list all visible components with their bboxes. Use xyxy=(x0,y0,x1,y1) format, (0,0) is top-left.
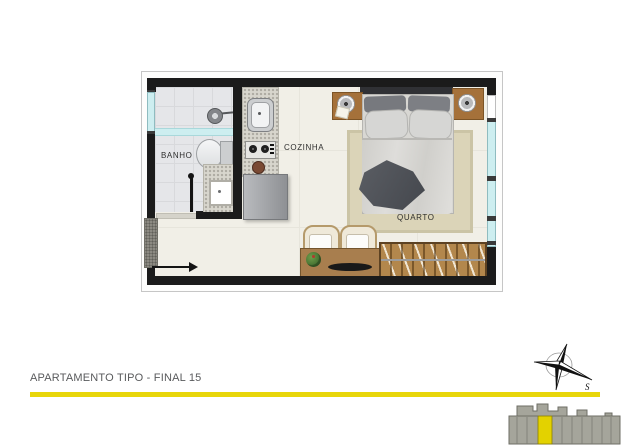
refrigerator-icon xyxy=(243,174,288,220)
bedroom-window xyxy=(487,118,496,247)
wall-right-pillar xyxy=(487,95,496,120)
window-mullion xyxy=(487,216,496,221)
entrance-arrow-line xyxy=(152,266,190,268)
wall-right xyxy=(487,78,496,95)
bathroom-door-leaf xyxy=(190,178,193,212)
window-cap xyxy=(487,241,496,245)
wall-right xyxy=(487,245,496,285)
cooktop-knob xyxy=(270,144,274,146)
bathroom-faucet-dot xyxy=(218,190,221,193)
accent-line xyxy=(30,392,600,397)
door-jamb xyxy=(196,211,203,219)
bathroom-door-threshold xyxy=(156,213,198,219)
compass-rose-icon: S xyxy=(523,340,597,398)
pillow xyxy=(408,109,452,140)
wall-top xyxy=(147,78,496,87)
floorplan-page: BANHO COZINHA QUARTO APARTAMENTO TIPO - … xyxy=(0,0,630,445)
bathroom-door-knob xyxy=(188,173,194,179)
burner-icon xyxy=(261,145,269,153)
cooktop-knob xyxy=(270,152,274,154)
page-title: APARTAMENTO TIPO - FINAL 15 xyxy=(30,372,201,384)
wall-left xyxy=(147,132,155,218)
room-label-quarto: QUARTO xyxy=(397,213,435,222)
pillow xyxy=(364,109,408,140)
wall-bathroom-partition xyxy=(233,87,242,218)
cooktop-knob xyxy=(270,148,274,150)
structural-column xyxy=(144,218,158,268)
tv-icon xyxy=(328,263,372,271)
shower-head-icon xyxy=(207,108,223,124)
window-cap xyxy=(147,131,155,134)
wardrobe-rail xyxy=(381,259,485,261)
kitchen-faucet-dot xyxy=(258,112,261,115)
apartment-highlight xyxy=(538,416,552,444)
entrance-arrow-head xyxy=(189,262,198,272)
room-label-banho: BANHO xyxy=(161,151,192,160)
flower-dot xyxy=(312,255,315,258)
wall-left xyxy=(147,266,155,285)
bathroom-sink-icon xyxy=(209,180,233,206)
room-label-cozinha: COZINHA xyxy=(284,143,324,152)
wall-bottom xyxy=(147,276,496,285)
compass-label: S xyxy=(585,382,590,392)
bathroom-window xyxy=(147,92,155,134)
building-locator-icon xyxy=(507,403,627,445)
lamp-icon xyxy=(458,94,476,112)
kitchen-sink-bowl xyxy=(251,102,270,128)
window-mullion xyxy=(487,176,496,181)
shower-glass-partition xyxy=(155,128,233,136)
building-silhouette xyxy=(509,404,620,444)
kitchen-bowl-icon xyxy=(252,161,265,174)
burner-icon xyxy=(249,145,257,153)
window-cap xyxy=(487,118,496,122)
wall-bathroom-partition xyxy=(203,212,242,219)
